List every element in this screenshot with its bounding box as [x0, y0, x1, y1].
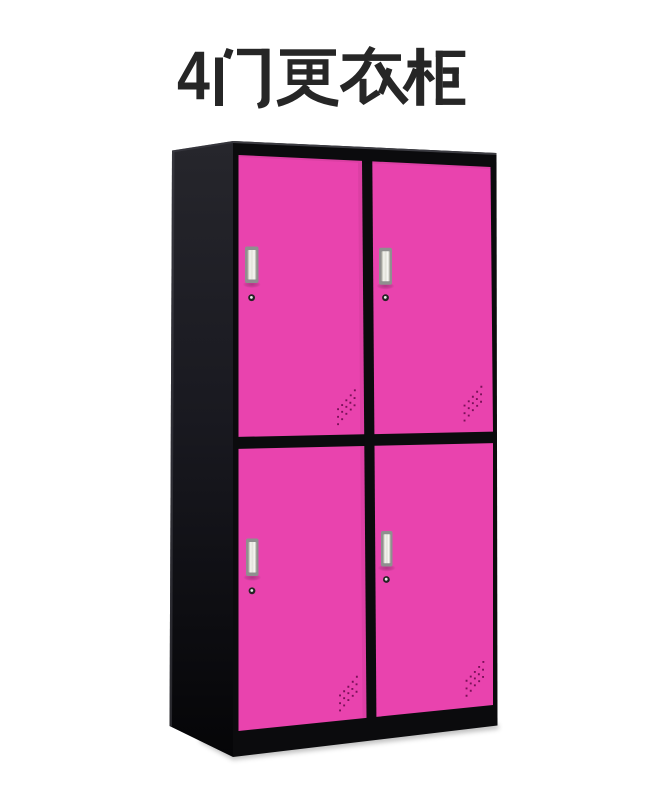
- svg-text:4: 4: [177, 37, 210, 114]
